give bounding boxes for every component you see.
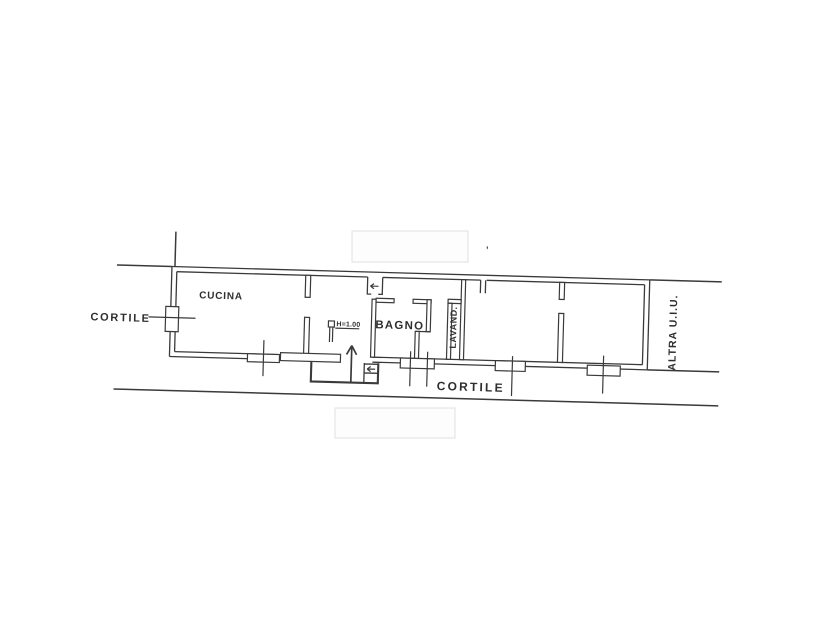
entry-arrow-up-icon (346, 345, 357, 382)
porch-outline (311, 361, 379, 383)
redaction-box-top (352, 231, 468, 262)
wall-right-inner (642, 285, 644, 365)
room-label-cucina: CUCINA (199, 290, 243, 302)
height-note-underline (335, 328, 359, 329)
room-label-bagno: BAGNO (375, 319, 424, 332)
lot-line-bottom (114, 389, 719, 406)
wall-right-outer (647, 280, 650, 370)
altra-uiu-label: ALTRA U.I.U. (666, 294, 680, 370)
window-sill-2 (400, 358, 434, 369)
bagno-wall-top-left-seg (376, 298, 394, 303)
window-sill-3 (495, 361, 525, 372)
cortile-left-label: CORTILE (90, 311, 150, 325)
stray-ink-mark: ’ (486, 245, 489, 255)
low-wall-line (329, 327, 332, 342)
tick-line-1 (263, 340, 264, 376)
cortile-leader-line (149, 317, 196, 318)
entrance-area (311, 320, 380, 383)
scan-artifacts: ’ (335, 231, 489, 438)
north-door-arrow-left-icon (370, 283, 378, 288)
window-sill-west (165, 306, 179, 331)
redaction-box-bottom (335, 408, 455, 438)
south-windows (247, 340, 621, 399)
lavanderia-wall-right (459, 280, 465, 360)
bagno-wall-right-lower (414, 331, 419, 358)
lot-line-right-extension (647, 370, 719, 372)
east-partition-lower (557, 313, 563, 362)
cucina-partition-upper-stub (305, 275, 311, 297)
labels: CUCINA BAGNO LAVAND. H=1.00 CORTILE CORT… (89, 278, 681, 399)
entry-steps (364, 363, 379, 383)
tick-line-4 (603, 356, 604, 394)
boundary-line-above-corner (175, 232, 176, 267)
building-outline (169, 267, 649, 370)
room-label-lavanderia: LAVAND. (448, 306, 459, 348)
lot-line-top-left (117, 265, 172, 267)
east-partition-upper-stub (559, 282, 564, 299)
lot-line-top-right (650, 280, 722, 282)
step-arrow-left-icon (367, 366, 375, 371)
bagno-wall-right-upper (426, 300, 431, 332)
low-wall-jamb (328, 321, 334, 327)
cortile-bottom-label: CORTILE (437, 379, 505, 395)
west-window (148, 306, 196, 332)
scanned-floor-plan-page: ’ (0, 0, 840, 630)
floor-plan-svg: ’ (0, 0, 840, 630)
top-wall-slot (480, 280, 485, 293)
entrance-threshold (280, 353, 340, 363)
cucina-partition-lower (304, 317, 310, 355)
interior-walls (304, 275, 565, 362)
